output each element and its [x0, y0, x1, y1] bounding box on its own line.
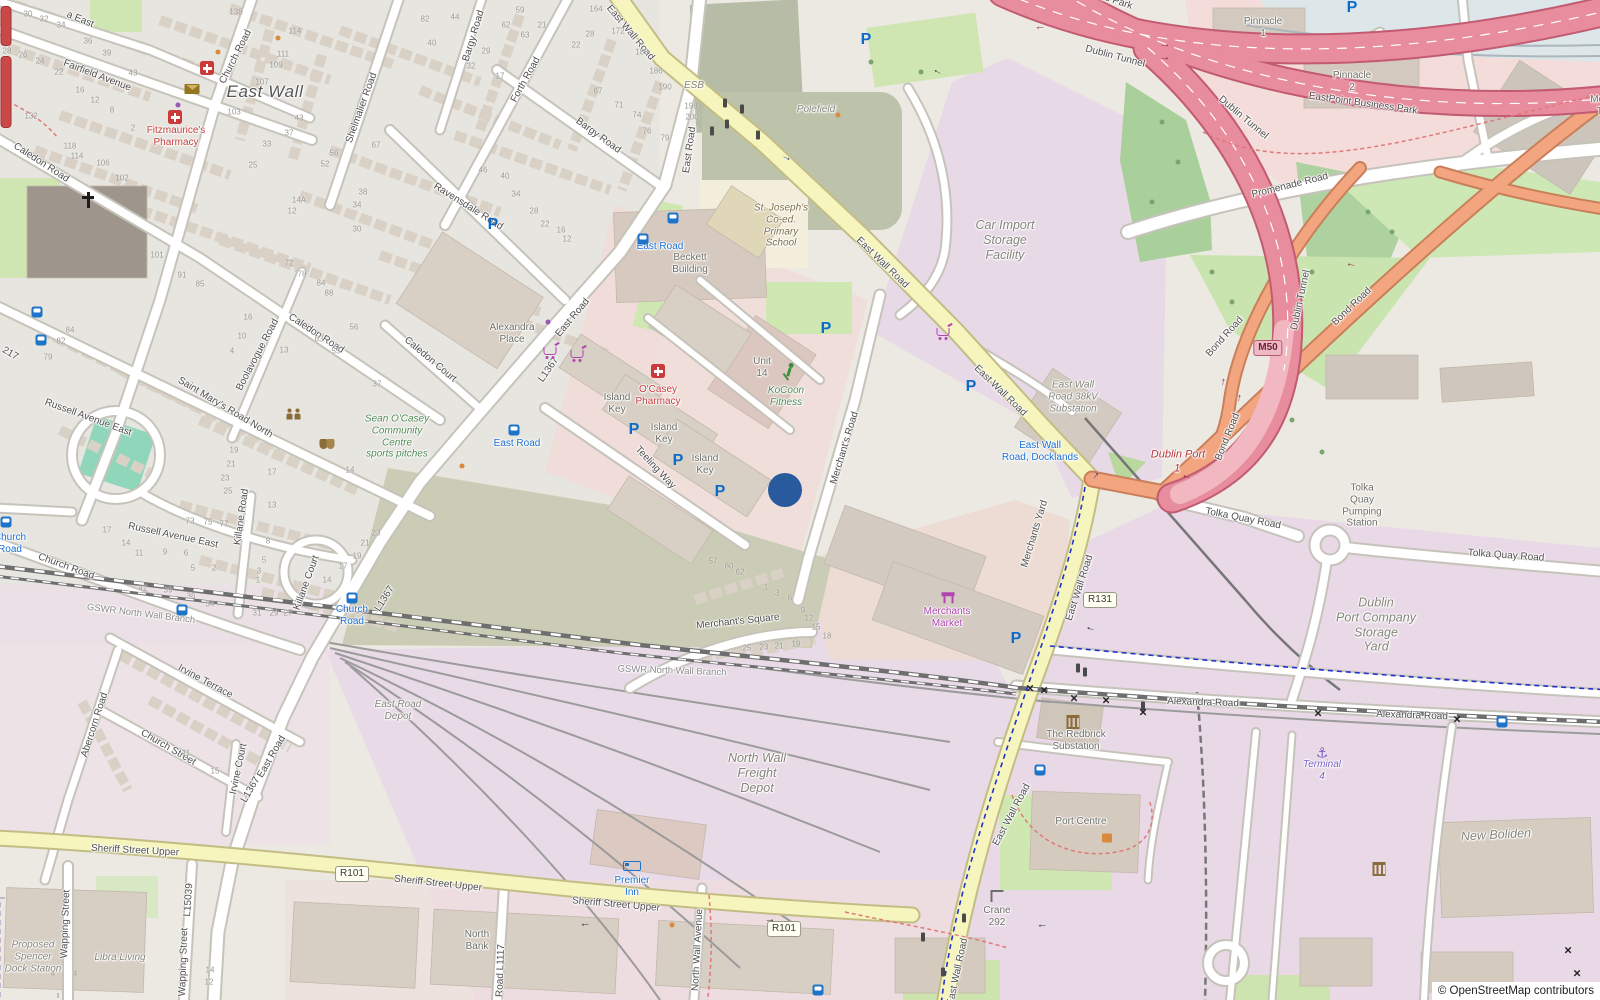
contributors-text: contributors [1534, 985, 1594, 997]
osm-link[interactable]: OpenStreetMap [1450, 985, 1531, 997]
location-marker [768, 473, 802, 507]
copyright-symbol: © [1438, 985, 1446, 997]
map-canvas [0, 0, 1600, 1000]
map-attribution: © OpenStreetMap contributors [1432, 982, 1600, 1000]
map-viewport[interactable]: a EastFairfield AvenueChurch RoadShelmal… [0, 0, 1600, 1000]
